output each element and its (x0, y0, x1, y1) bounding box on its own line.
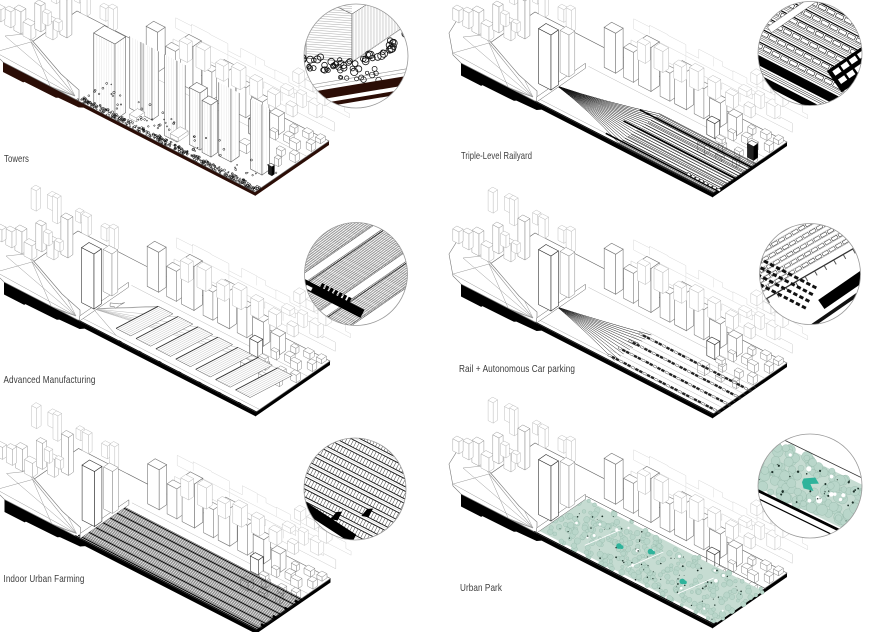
svg-text:Urban Park: Urban Park (460, 583, 503, 594)
svg-text:Triple-Level Railyard: Triple-Level Railyard (461, 151, 532, 162)
svg-text:Rail + Autonomous Car parking: Rail + Autonomous Car parking (459, 364, 575, 375)
svg-text:Indoor Urban Farming: Indoor Urban Farming (4, 574, 85, 585)
svg-text:Towers: Towers (4, 154, 29, 165)
svg-text:Advanced Manufacturing: Advanced Manufacturing (4, 375, 96, 386)
